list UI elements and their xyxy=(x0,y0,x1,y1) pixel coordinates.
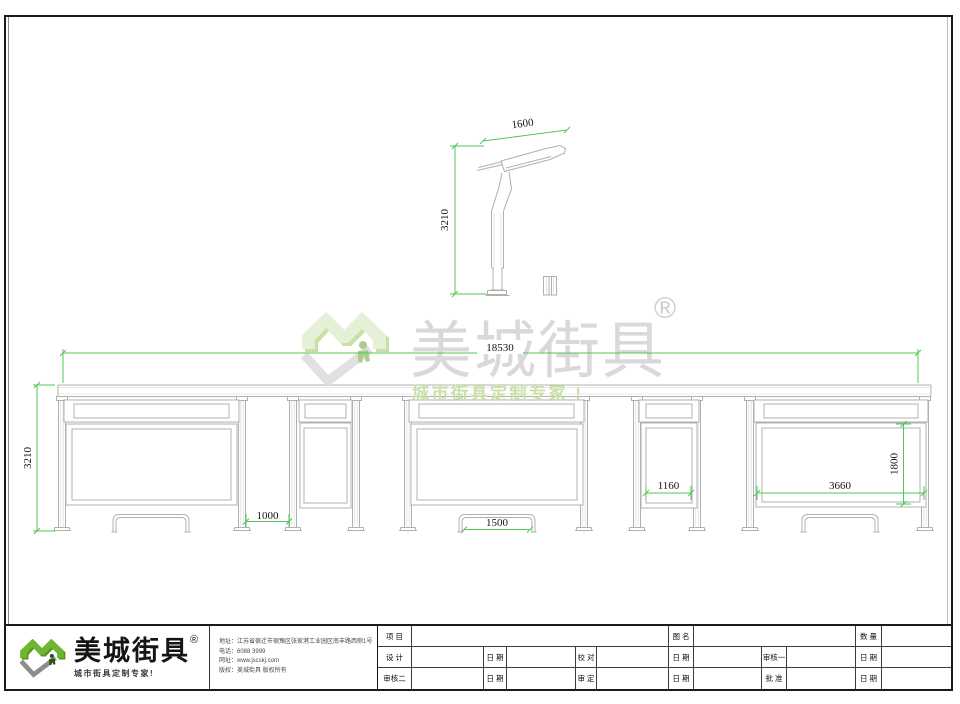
watermark-logo-icon xyxy=(302,312,389,381)
tb-label-design: 设 计 xyxy=(378,647,412,668)
tb-value-approve xyxy=(787,668,856,689)
tb-label-review2-date: 日 期 xyxy=(484,668,507,689)
elevation-drawing xyxy=(53,385,934,532)
title-block-table: 项 目 图 名 数 量 设 计 日 期 校 对 日 期 审核一 日 期 审核二 … xyxy=(378,626,951,689)
dim-large-panel-width: 3660 xyxy=(829,480,852,492)
tb-value-design xyxy=(412,647,484,668)
tb-value-examine xyxy=(597,668,669,689)
logo-cell: 美城街具 ® 城市街具定制专家! xyxy=(6,626,210,689)
tb-value-review2-date xyxy=(507,668,576,689)
tb-label-approve-date: 日 期 xyxy=(856,668,882,689)
dim-bench-width: 1500 xyxy=(486,517,509,529)
company-website: 网址：www.jscskj.com xyxy=(219,657,375,667)
tb-label-examine: 审 定 xyxy=(576,668,597,689)
company-address: 地址：江苏省宿迁市宿豫区张家港工业园区南丰路西侧1号 xyxy=(219,638,375,648)
company-info-cell: 地址：江苏省宿迁市宿豫区张家港工业园区南丰路西侧1号 电话：6088 3999 … xyxy=(210,626,378,689)
dim-side-pole-width: 1600 xyxy=(511,117,535,132)
company-brand-name: 美城街具 xyxy=(74,637,190,665)
tb-value-design-date xyxy=(507,647,576,668)
tb-label-review1-date: 日 期 xyxy=(856,647,882,668)
tb-label-approve: 批 准 xyxy=(762,668,787,689)
tb-label-quantity: 数 量 xyxy=(856,626,882,647)
tb-value-examine-date xyxy=(694,668,762,689)
dim-side-pole-height: 3210 xyxy=(439,209,451,232)
watermark-tagline: 城市街具定制专家 ! xyxy=(412,383,583,403)
company-copyright: 版权：美城街具 版权所有 xyxy=(219,667,375,677)
dim-small-panel-width: 1160 xyxy=(658,480,680,492)
watermark-brand: 美城街具 xyxy=(410,317,666,386)
tb-value-drawing-name xyxy=(694,626,856,647)
company-tagline: 城市街具定制专家! xyxy=(74,668,198,679)
tb-label-proofread: 校 对 xyxy=(576,647,597,668)
tb-value-approve-date xyxy=(882,668,951,689)
tb-label-proofread-date: 日 期 xyxy=(669,647,694,668)
tb-value-review1 xyxy=(787,647,856,668)
dim-panel-height: 1800 xyxy=(889,453,901,476)
tb-value-proofread-date xyxy=(694,647,762,668)
tb-label-drawing-name: 图 名 xyxy=(669,626,694,647)
tb-label-review1: 审核一 xyxy=(762,647,787,668)
tb-value-proofread xyxy=(597,647,669,668)
tb-value-review2 xyxy=(412,668,484,689)
tb-value-quantity xyxy=(882,626,951,647)
dim-bay-gap: 1000 xyxy=(257,510,280,522)
tb-label-examine-date: 日 期 xyxy=(669,668,694,689)
tb-label-design-date: 日 期 xyxy=(484,647,507,668)
company-logo-icon xyxy=(16,632,70,684)
tb-label-project: 项 目 xyxy=(378,626,412,647)
tb-value-project xyxy=(412,626,669,647)
title-block: 美城街具 ® 城市街具定制专家! 地址：江苏省宿迁市宿豫区张家港工业园区南丰路西… xyxy=(4,624,953,691)
dim-total-width: 18530 xyxy=(486,342,514,354)
cad-drawing: 美城街具 ® 城市街具定制专家 ! 1600 3210 18530 3210 xyxy=(0,0,960,625)
dim-shelter-height: 3210 xyxy=(22,447,34,470)
watermark-reg-icon: ® xyxy=(654,292,676,325)
side-view-pole xyxy=(477,146,566,296)
registered-trademark-icon: ® xyxy=(190,634,198,646)
tb-value-review1-date xyxy=(882,647,951,668)
tb-label-review2: 审核二 xyxy=(378,668,412,689)
company-phone: 电话：6088 3999 xyxy=(219,648,375,658)
